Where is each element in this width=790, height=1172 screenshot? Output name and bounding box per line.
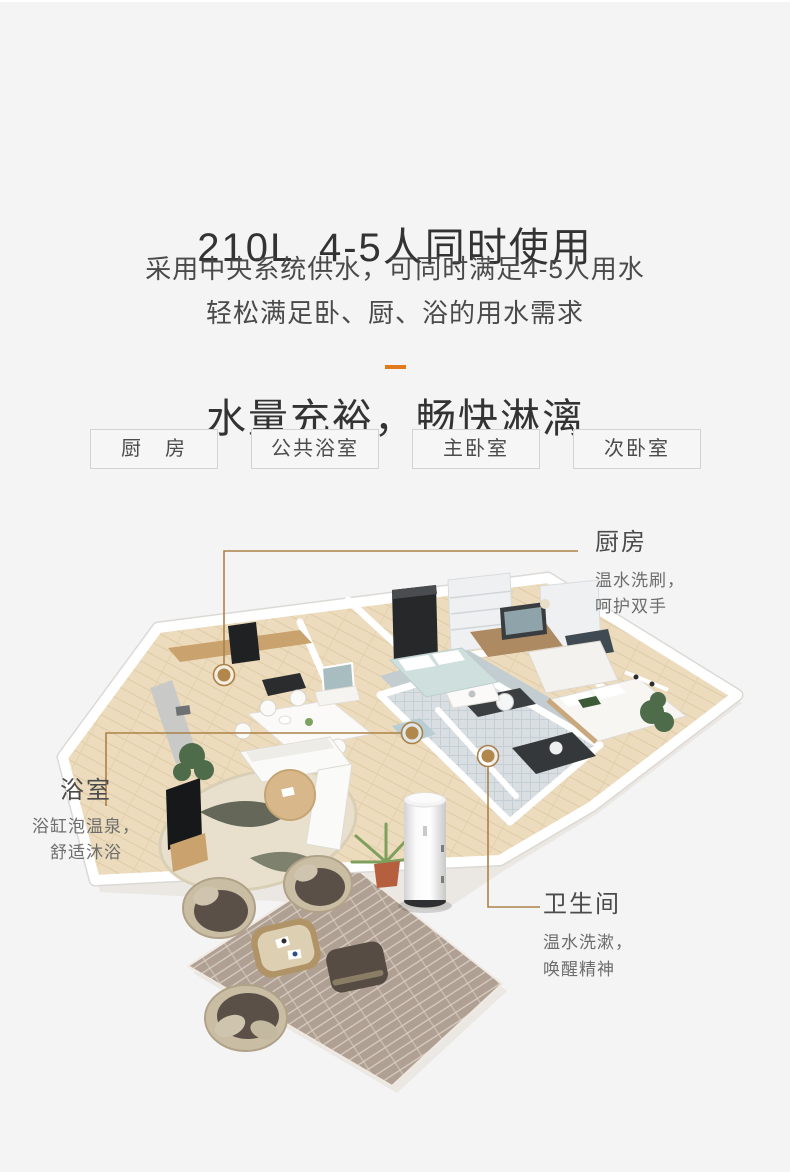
callout-kitchen-desc-line2: 呵护双手: [595, 594, 685, 620]
bathroom-marker-dot-icon: [402, 723, 423, 744]
callout-bathroom-desc-line2: 舒适沐浴: [6, 840, 166, 866]
callout-kitchen-desc-line1: 温水洗刷，: [595, 568, 685, 594]
callout-kitchen: 厨房 温水洗刷， 呵护双手: [595, 528, 685, 620]
callout-toilet-title: 卫生间: [543, 890, 633, 920]
callout-bathroom: 浴室 浴缸泡温泉， 舒适沐浴: [6, 776, 166, 866]
callout-kitchen-title: 厨房: [595, 528, 685, 558]
callout-kitchen-desc: 温水洗刷， 呵护双手: [595, 568, 685, 620]
water-heater: [398, 793, 452, 913]
callout-toilet-desc-line2: 唤醒精神: [543, 956, 633, 983]
callout-bathroom-desc-line1: 浴缸泡温泉，: [6, 814, 166, 840]
callout-toilet-desc: 温水洗漱， 唤醒精神: [543, 929, 633, 983]
callout-toilet-desc-line1: 温水洗漱，: [543, 929, 633, 956]
toilet-marker-dot-icon: [478, 746, 499, 767]
wicker-chair: [205, 985, 287, 1051]
wicker-chair: [284, 856, 352, 912]
kitchen-marker-dot-icon: [214, 665, 235, 686]
callout-bathroom-desc: 浴缸泡温泉， 舒适沐浴: [6, 814, 166, 866]
promo-page: 210L 4-5人同时使用 水量充裕，畅快淋漓 采用中央系统供水，可同时满足4-…: [0, 0, 790, 1172]
callout-bathroom-title: 浴室: [6, 776, 166, 806]
callout-toilet: 卫生间 温水洗漱， 唤醒精神: [543, 890, 633, 983]
wicker-chair: [183, 878, 255, 938]
